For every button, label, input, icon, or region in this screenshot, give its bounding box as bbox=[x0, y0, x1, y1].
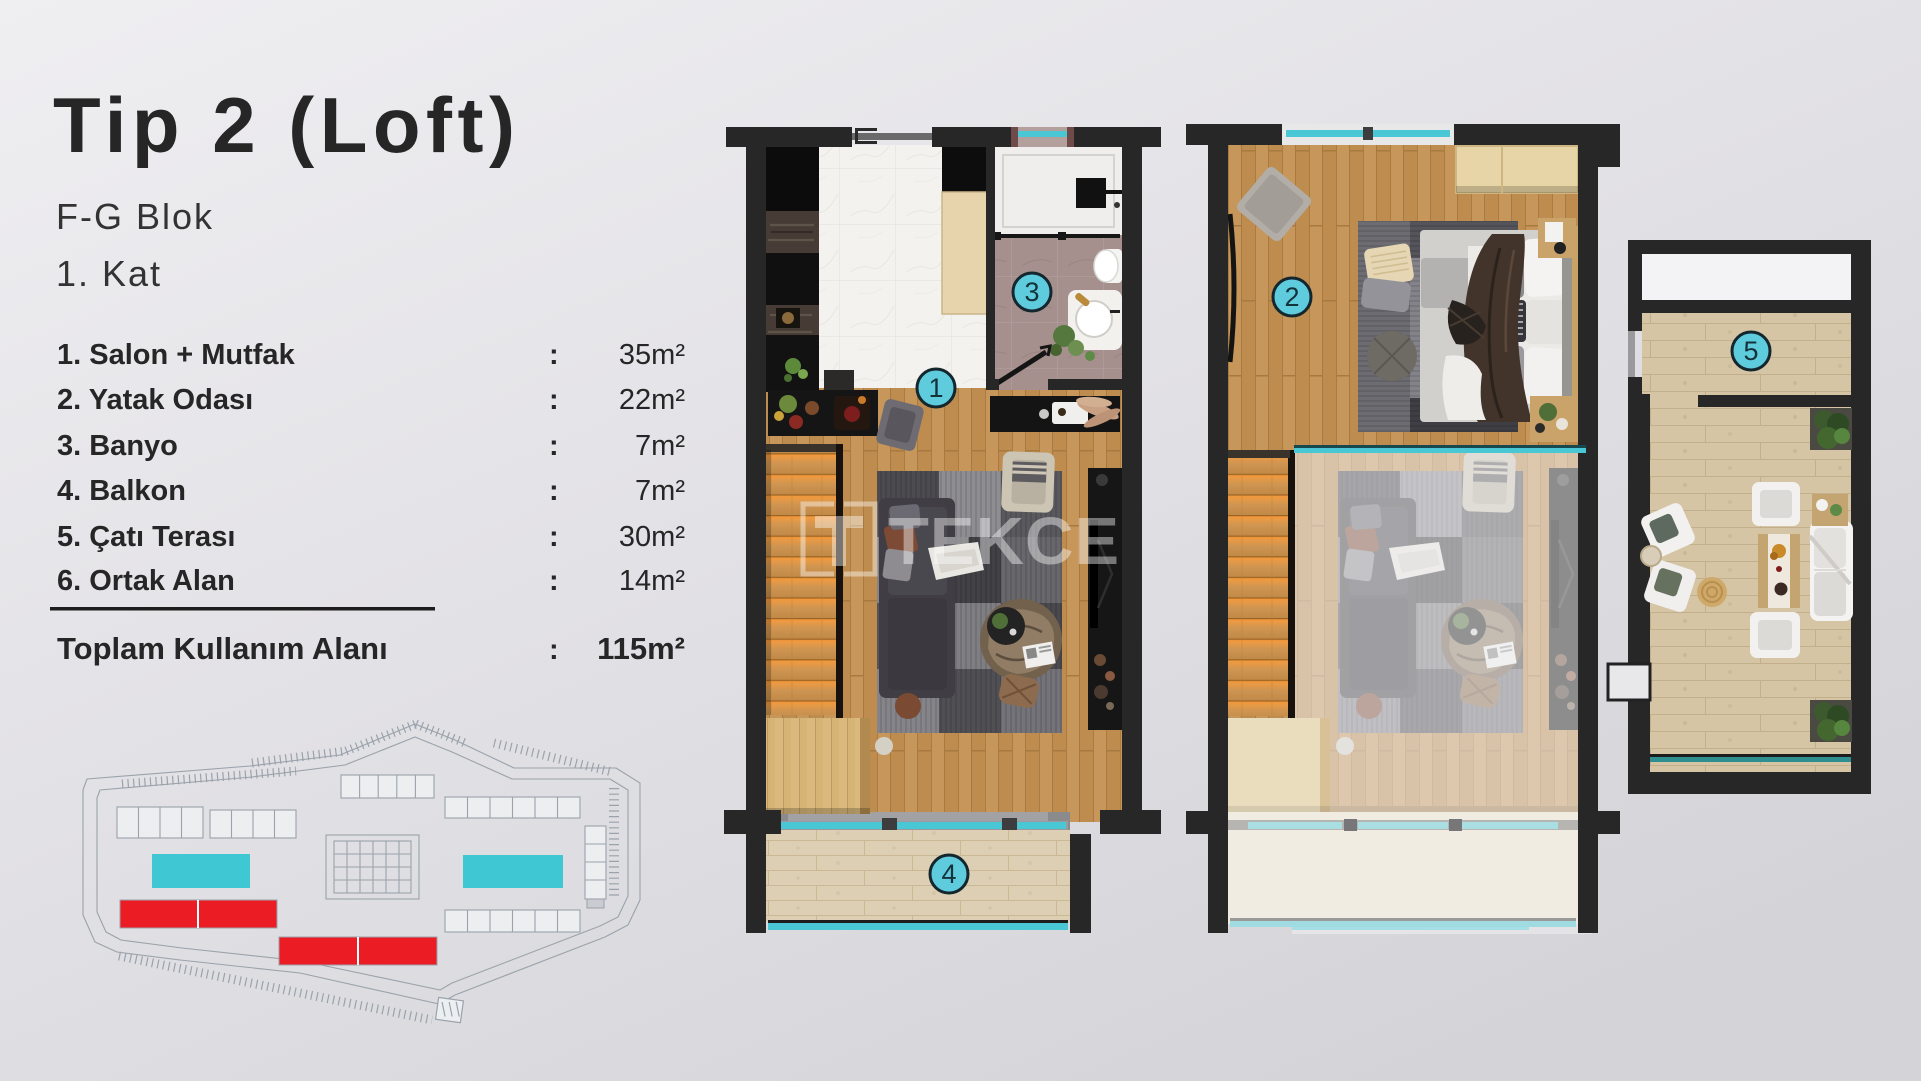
svg-text:3. Banyo: 3. Banyo bbox=[57, 430, 178, 462]
svg-text::: : bbox=[549, 475, 559, 507]
svg-text:2: 2 bbox=[1284, 282, 1299, 312]
svg-text::: : bbox=[549, 634, 559, 666]
svg-text:TEKCE: TEKCE bbox=[888, 504, 1120, 579]
svg-text:22m²: 22m² bbox=[619, 384, 685, 416]
svg-text::: : bbox=[549, 430, 559, 462]
svg-text:4. Balkon: 4. Balkon bbox=[57, 475, 186, 507]
svg-text:35m²: 35m² bbox=[619, 339, 685, 371]
svg-text:3: 3 bbox=[1024, 277, 1039, 307]
svg-text:1. Kat: 1. Kat bbox=[56, 253, 162, 294]
svg-text::: : bbox=[549, 339, 559, 371]
svg-text:7m²: 7m² bbox=[635, 430, 685, 462]
svg-text:30m²: 30m² bbox=[619, 521, 685, 553]
svg-text:4: 4 bbox=[941, 859, 956, 889]
svg-text:1. Salon + Mutfak: 1. Salon + Mutfak bbox=[57, 339, 296, 371]
svg-text:7m²: 7m² bbox=[635, 475, 685, 507]
svg-text:5. Çatı Terası: 5. Çatı Terası bbox=[57, 521, 235, 553]
svg-text:Tip 2 (Loft): Tip 2 (Loft) bbox=[53, 81, 520, 169]
svg-text:5: 5 bbox=[1743, 336, 1758, 366]
svg-text::: : bbox=[549, 565, 559, 597]
svg-text:14m²: 14m² bbox=[619, 565, 685, 597]
svg-text:2. Yatak Odası: 2. Yatak Odası bbox=[57, 384, 253, 416]
svg-text::: : bbox=[549, 384, 559, 416]
svg-text:115m²: 115m² bbox=[597, 631, 685, 666]
svg-text:1: 1 bbox=[928, 373, 943, 403]
svg-text:Toplam Kullanım Alanı: Toplam Kullanım Alanı bbox=[57, 631, 388, 666]
svg-text:F-G Blok: F-G Blok bbox=[56, 196, 214, 237]
svg-text:6. Ortak Alan: 6. Ortak Alan bbox=[57, 565, 235, 597]
svg-text::: : bbox=[549, 521, 559, 553]
